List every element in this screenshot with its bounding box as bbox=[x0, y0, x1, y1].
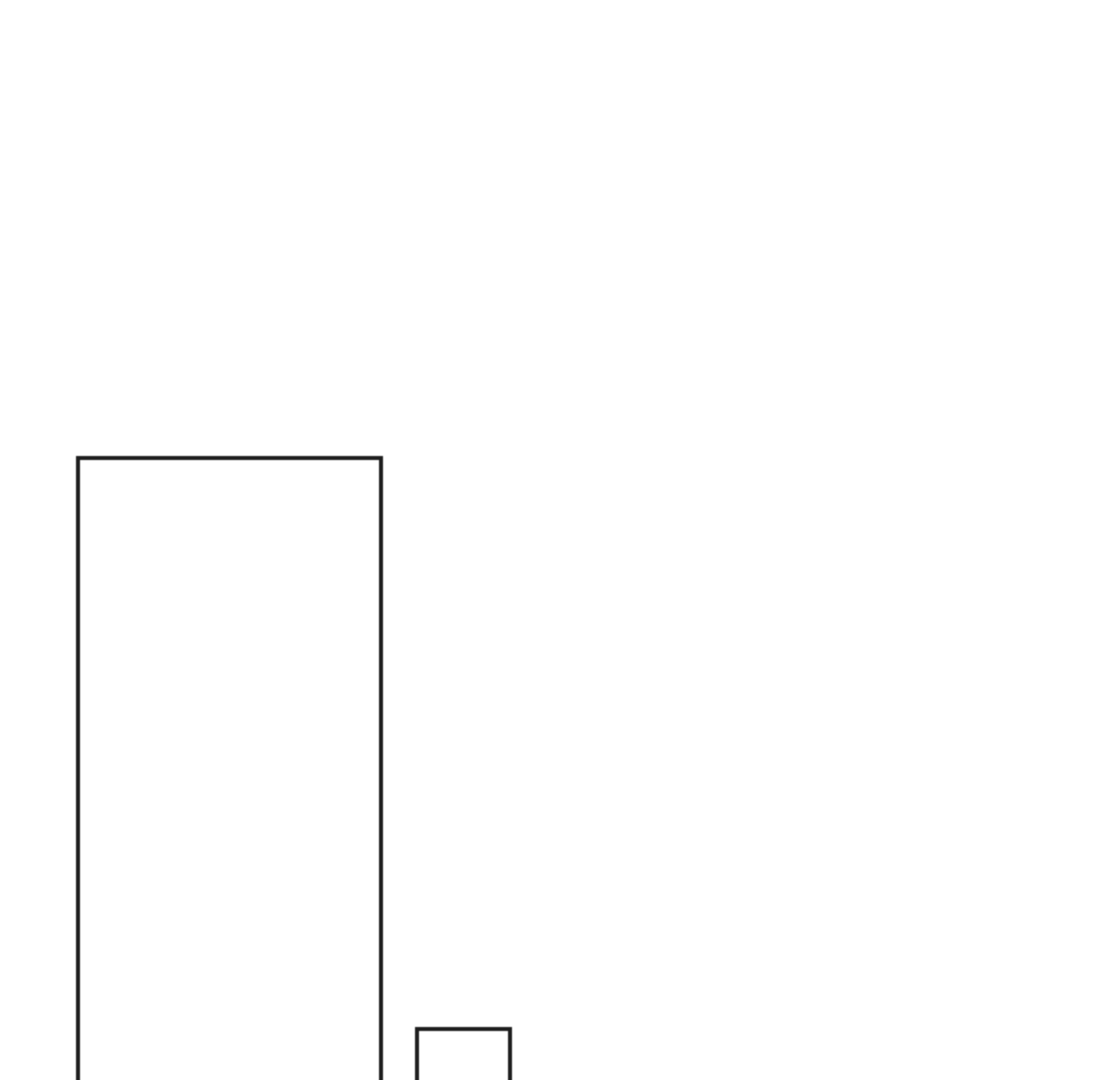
histogram-bar-short bbox=[415, 1027, 512, 1080]
chart-canvas bbox=[0, 0, 1116, 1080]
histogram-bar-tall bbox=[76, 456, 383, 1080]
